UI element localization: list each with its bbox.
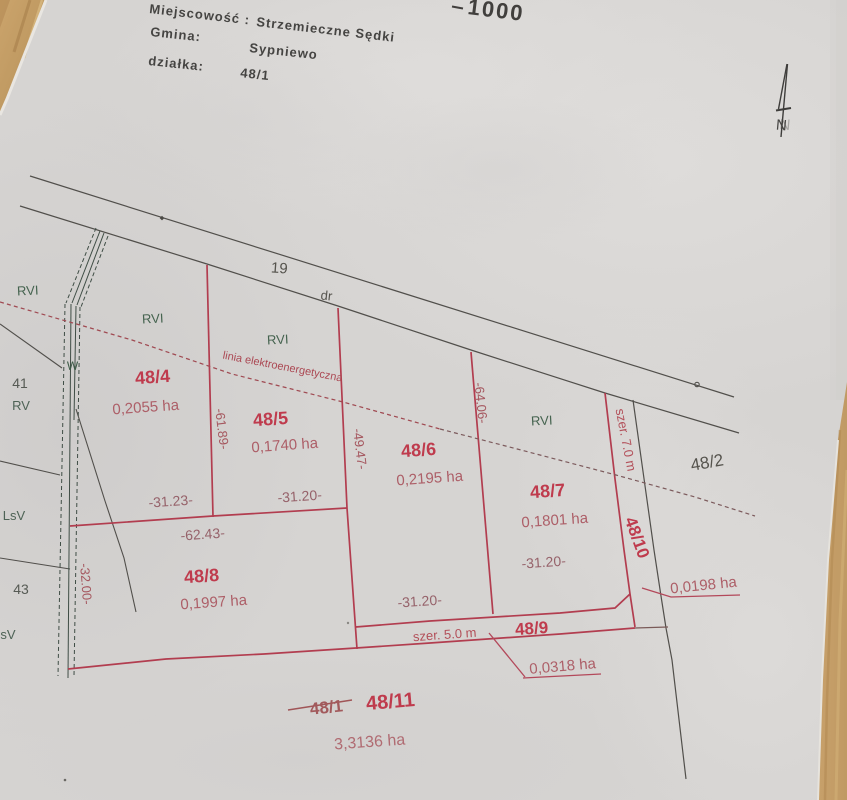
svg-text:48/4: 48/4 [134,366,170,388]
svg-text:48/5: 48/5 [252,408,288,430]
svg-text:RVI: RVI [531,412,553,428]
svg-text:-31.23-: -31.23- [148,491,194,510]
svg-text:48/1: 48/1 [240,65,271,83]
svg-text:sV: sV [0,627,16,642]
svg-text:LsV: LsV [3,508,26,523]
svg-text:48/8: 48/8 [183,565,219,587]
svg-text:-31.20-: -31.20- [397,591,443,610]
svg-text:dr: dr [320,287,334,303]
svg-text:W: W [67,359,79,373]
svg-text:43: 43 [13,581,29,597]
svg-text:RVI: RVI [142,310,164,326]
svg-text:-31.20-: -31.20- [521,552,567,571]
svg-text:RVI: RVI [267,331,289,347]
svg-text:19: 19 [270,259,288,277]
svg-text:N: N [779,116,791,134]
svg-text:-31.20-: -31.20- [277,486,323,505]
svg-text:-62.43-: -62.43- [180,524,226,543]
svg-text:48/1: 48/1 [309,696,344,718]
svg-text:48/7: 48/7 [529,480,565,502]
svg-text:-32.00-: -32.00- [77,563,95,605]
svg-text:RV: RV [12,398,30,413]
svg-text:RVI: RVI [17,282,39,298]
svg-text:41: 41 [12,375,28,391]
svg-text:48/9: 48/9 [514,618,548,639]
svg-text:48/11: 48/11 [365,689,416,715]
svg-text:48/6: 48/6 [400,439,436,461]
